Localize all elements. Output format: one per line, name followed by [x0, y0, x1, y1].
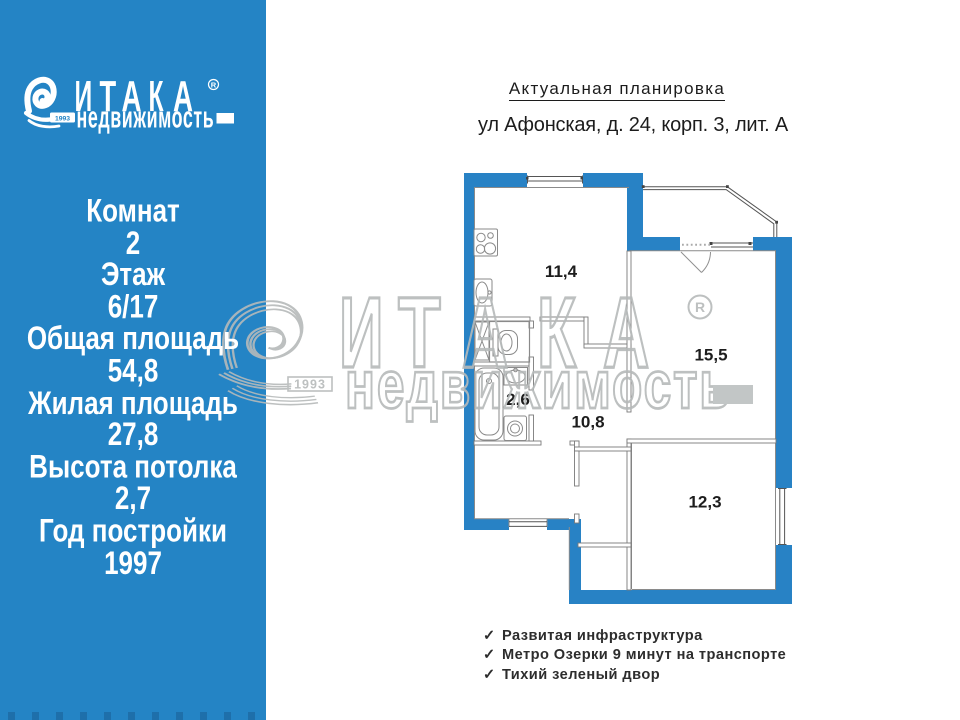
svg-text:12,3: 12,3 — [688, 493, 721, 512]
svg-text:1993: 1993 — [55, 115, 70, 122]
svg-text:недвижимость: недвижимость — [345, 346, 732, 423]
svg-text:недвижимость: недвижимость — [77, 101, 215, 135]
svg-text:R: R — [211, 81, 217, 90]
svg-text:R: R — [695, 299, 705, 315]
svg-text:1993: 1993 — [294, 378, 326, 392]
